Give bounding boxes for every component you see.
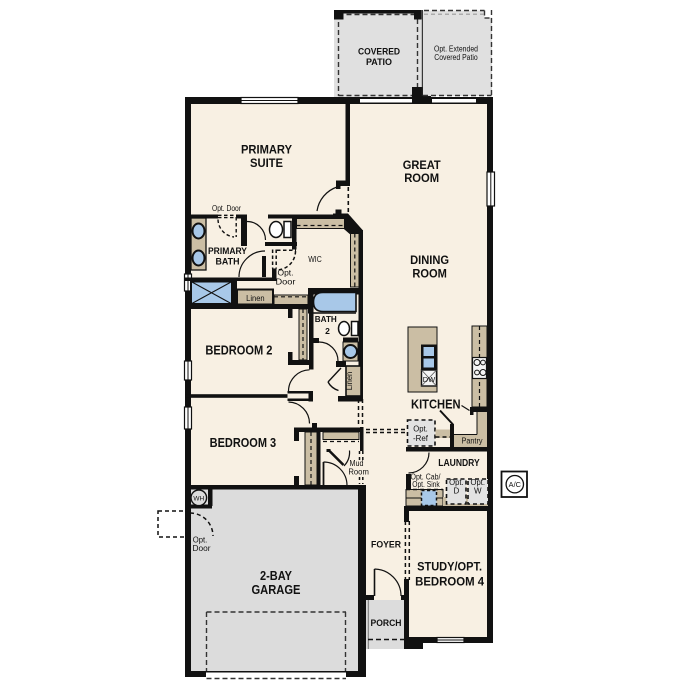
- svg-text:PRIMARY: PRIMARY: [241, 143, 292, 157]
- svg-text:STUDY/OPT.: STUDY/OPT.: [417, 560, 482, 574]
- svg-text:W: W: [474, 487, 482, 496]
- svg-text:Room: Room: [348, 468, 369, 477]
- svg-text:WH: WH: [193, 496, 204, 503]
- svg-text:GREAT: GREAT: [403, 158, 442, 172]
- svg-text:PATIO: PATIO: [366, 57, 392, 68]
- svg-text:Door: Door: [193, 544, 211, 553]
- svg-text:PRIMARY: PRIMARY: [208, 246, 247, 256]
- svg-text:Opt.: Opt.: [413, 425, 428, 434]
- svg-text:2-BAY: 2-BAY: [260, 569, 293, 583]
- svg-text:COVERED: COVERED: [358, 46, 400, 57]
- svg-text:DW: DW: [423, 375, 436, 384]
- svg-text:-Ref: -Ref: [413, 434, 429, 443]
- svg-text:Door: Door: [276, 278, 296, 287]
- svg-text:BEDROOM 3: BEDROOM 3: [210, 436, 277, 450]
- svg-text:2: 2: [325, 326, 330, 336]
- svg-text:D: D: [454, 487, 460, 496]
- svg-text:A/C: A/C: [509, 482, 521, 489]
- svg-text:DINING: DINING: [410, 253, 449, 267]
- svg-text:Opt. Door: Opt. Door: [212, 204, 241, 213]
- svg-text:Pantry: Pantry: [462, 437, 483, 446]
- svg-text:Linen: Linen: [246, 294, 265, 303]
- svg-text:BEDROOM 4: BEDROOM 4: [415, 574, 484, 588]
- svg-text:SUITE: SUITE: [250, 156, 283, 170]
- svg-text:PORCH: PORCH: [371, 618, 402, 629]
- svg-text:Linen: Linen: [345, 372, 354, 391]
- svg-text:ROOM: ROOM: [404, 171, 439, 185]
- svg-text:WIC: WIC: [308, 255, 322, 264]
- svg-text:BATH: BATH: [216, 257, 240, 267]
- svg-text:Opt. Sink: Opt. Sink: [412, 480, 440, 489]
- svg-text:GARAGE: GARAGE: [252, 583, 301, 597]
- svg-text:KITCHEN: KITCHEN: [411, 397, 461, 411]
- svg-text:ROOM: ROOM: [412, 267, 447, 281]
- svg-text:Opt.: Opt.: [278, 269, 294, 278]
- svg-text:BATH: BATH: [315, 314, 337, 324]
- svg-text:BEDROOM 2: BEDROOM 2: [205, 343, 272, 357]
- svg-text:Covered Patio: Covered Patio: [434, 53, 478, 62]
- svg-text:LAUNDRY: LAUNDRY: [438, 458, 480, 469]
- svg-text:FOYER: FOYER: [371, 539, 401, 550]
